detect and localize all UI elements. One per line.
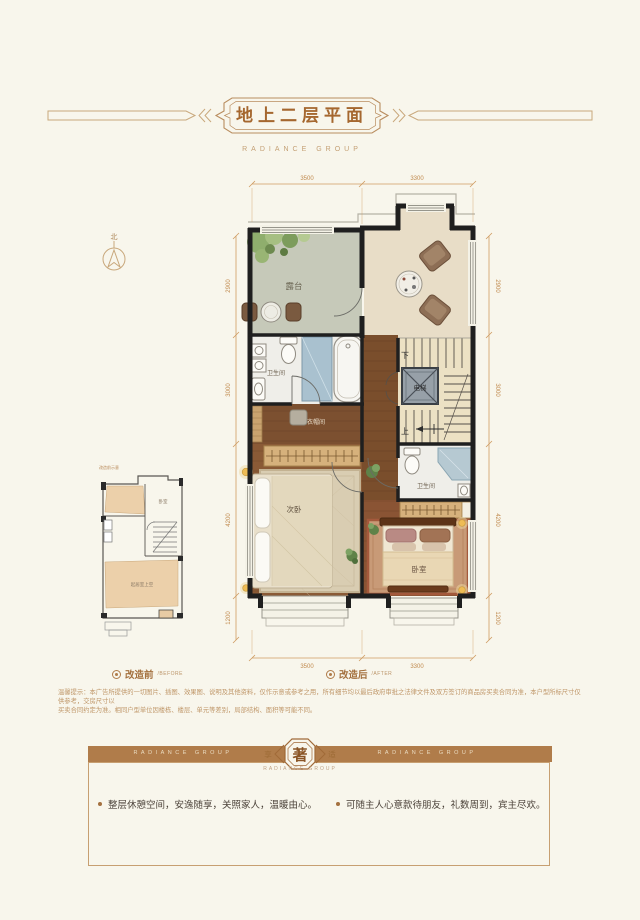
floorplan-poster: 地上二层平面 RADIANCE GROUP 北 bbox=[0, 0, 640, 920]
svg-text:3300: 3300 bbox=[410, 176, 424, 182]
title-right-chevron-icon bbox=[393, 109, 405, 122]
legend-bullet-icon bbox=[112, 670, 121, 679]
before-void-label: 起居室上空 bbox=[131, 581, 154, 588]
bath2-label: 卫生间 bbox=[417, 482, 435, 490]
svg-text:3000: 3000 bbox=[226, 383, 232, 397]
compass: 北 bbox=[94, 228, 134, 274]
emblem-right-char: 适 bbox=[328, 749, 336, 759]
family-coffee-table bbox=[396, 271, 422, 297]
lamp-icon bbox=[459, 520, 466, 527]
disclaimer-line2: 买卖合同约定为准。相同户型单位因楼栋、楼层、单元等差别，局部结构、面积等可能不同… bbox=[58, 706, 585, 715]
legend-after-label: 改造后 bbox=[339, 667, 368, 681]
before-bedroom-label: 卧室 bbox=[159, 498, 168, 505]
bay-window bbox=[390, 598, 458, 618]
emblem-left-char: 享 bbox=[264, 749, 272, 759]
disclaimer: 温馨提示：本广告所提供的一切图片、插图、效果图、说明及其他资料，仅作示意或参考之… bbox=[58, 688, 585, 715]
elevator-label: 电梯 bbox=[414, 383, 428, 392]
stairs-up-label: 上 bbox=[401, 427, 409, 436]
toilet-icon bbox=[404, 448, 420, 455]
banner-sub-text: RADIANCE GROUP bbox=[250, 766, 350, 772]
toilet-icon bbox=[280, 337, 297, 344]
svg-text:2900: 2900 bbox=[226, 279, 232, 293]
svg-text:3000: 3000 bbox=[494, 383, 500, 397]
selling-point-2: 可随主人心意款待朋友，礼数周到，宾主尽欢。 bbox=[336, 797, 546, 811]
title-left-bar bbox=[48, 111, 195, 120]
page-title: 地上二层平面 bbox=[216, 101, 388, 126]
bullet-dot-icon bbox=[98, 802, 102, 806]
legend-before: 改造前 /BEFORE bbox=[112, 667, 183, 681]
selling-point-1-text: 整层休憩空间，安逸随享，关照家人，温暖由心。 bbox=[108, 797, 317, 811]
before-floorplan: 改造前示意 卧室 起居室上空 bbox=[85, 458, 215, 658]
main-floorplan: 3500 3300 3500 3300 2900 3000 4200 1200 … bbox=[200, 166, 502, 678]
legend-after: 改造后 /AFTER bbox=[326, 667, 392, 681]
svg-text:4200: 4200 bbox=[494, 513, 500, 527]
title-left-chevron-icon bbox=[199, 109, 211, 122]
emblem-right-bracket-icon bbox=[316, 745, 325, 763]
terrace-label: 露台 bbox=[285, 281, 302, 291]
legend-before-label: 改造前 bbox=[125, 667, 154, 681]
legend-before-en: /BEFORE bbox=[158, 671, 183, 677]
stairs-down-label: 下 bbox=[401, 351, 409, 360]
before-stoop bbox=[105, 622, 131, 630]
bedroom2-label: 次卧 bbox=[287, 504, 302, 514]
before-stairs bbox=[147, 522, 177, 552]
svg-text:2900: 2900 bbox=[494, 279, 500, 293]
bay-window bbox=[262, 596, 348, 618]
svg-text:1200: 1200 bbox=[494, 611, 500, 625]
legend-after-en: /AFTER bbox=[372, 671, 393, 677]
svg-text:1200: 1200 bbox=[226, 611, 232, 625]
compass-arrow-icon bbox=[103, 241, 125, 270]
svg-text:4200: 4200 bbox=[226, 513, 232, 527]
master-label: 卧室 bbox=[412, 564, 427, 574]
before-fixtures bbox=[104, 520, 112, 542]
banner-right-text: RADIANCE GROUP bbox=[362, 750, 492, 756]
disclaimer-line1: 温馨提示：本广告所提供的一切图片、插图、效果图、说明及其他资料，仅作示意或参考之… bbox=[58, 688, 585, 706]
bath1-label: 卫生间 bbox=[267, 369, 285, 377]
footer-box bbox=[88, 762, 550, 866]
banner-left-text: RADIANCE GROUP bbox=[118, 750, 248, 756]
selling-point-2-text: 可随主人心意款待朋友，礼数周到，宾主尽欢。 bbox=[346, 797, 546, 811]
brand-subtitle: RADIANCE GROUP bbox=[210, 146, 394, 153]
bullet-dot-icon bbox=[336, 802, 340, 806]
svg-text:3500: 3500 bbox=[300, 664, 314, 670]
svg-text:3300: 3300 bbox=[410, 664, 424, 670]
before-terrace-area bbox=[105, 486, 145, 514]
compass-north-label: 北 bbox=[111, 233, 118, 241]
emblem-center-char: 著 bbox=[291, 746, 307, 764]
emblem-left-bracket-icon bbox=[275, 745, 284, 763]
svg-text:3500: 3500 bbox=[300, 176, 314, 182]
closet-label: 衣帽间 bbox=[307, 418, 325, 426]
legend-bullet-icon bbox=[326, 670, 335, 679]
lamp-icon bbox=[459, 587, 466, 594]
selling-point-1: 整层休憩空间，安逸随享，关照家人，温暖由心。 bbox=[98, 797, 317, 811]
title-right-bar bbox=[409, 111, 592, 120]
before-door-box bbox=[159, 610, 173, 618]
before-plan-note: 改造前示意 bbox=[99, 464, 119, 470]
